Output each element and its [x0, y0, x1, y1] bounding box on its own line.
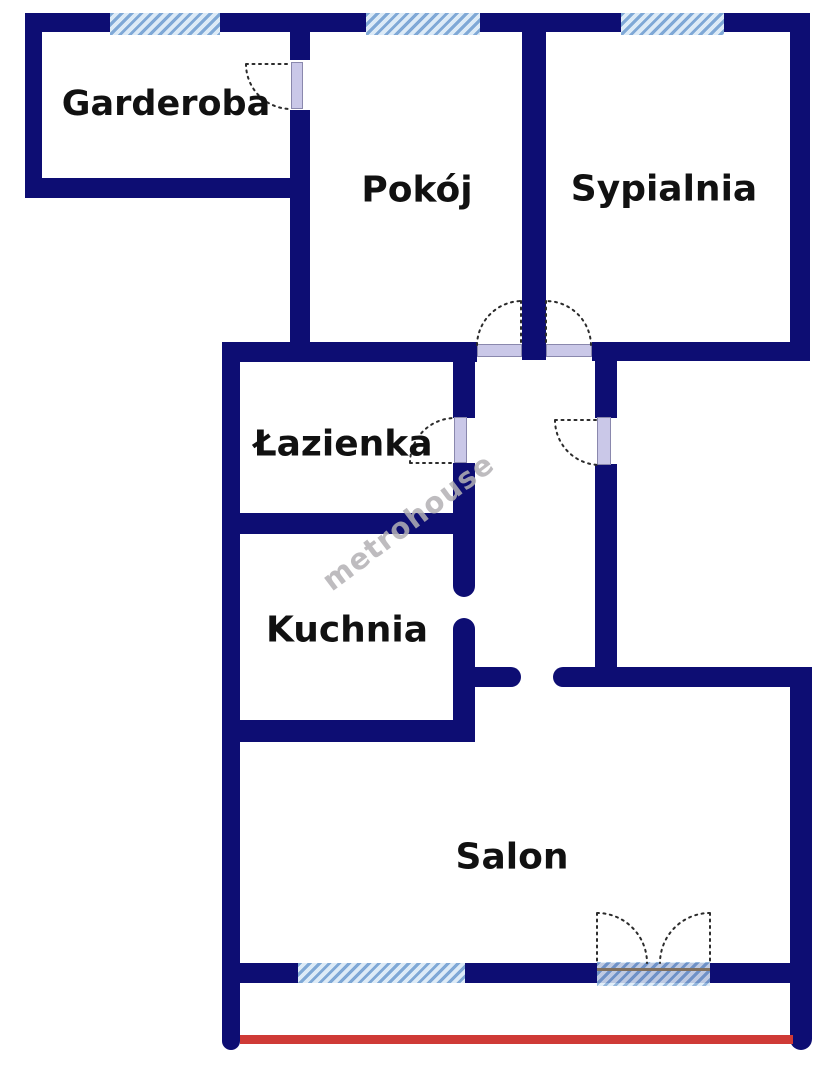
- door-arc-balcony-left: [597, 913, 647, 963]
- door-arc-pokoj: [477, 301, 521, 345]
- room-label-pokoj: Pokój: [361, 170, 472, 211]
- balcony-edge-line: [240, 1035, 793, 1044]
- room-label-garderoba: Garderoba: [62, 84, 270, 124]
- door-arc-balcony-right: [660, 913, 710, 963]
- floor-plan: Garderoba Pokój Sypialnia Łazienka Kuchn…: [0, 0, 821, 1080]
- door-arc-sypialnia: [546, 301, 591, 345]
- room-label-salon: Salon: [456, 837, 569, 878]
- room-label-lazienka: Łazienka: [254, 424, 433, 465]
- room-label-kuchnia: Kuchnia: [266, 610, 428, 651]
- door-arc-entrance: [555, 420, 600, 465]
- door-swing-arcs: [0, 0, 821, 1080]
- room-label-sypialnia: Sypialnia: [571, 169, 757, 210]
